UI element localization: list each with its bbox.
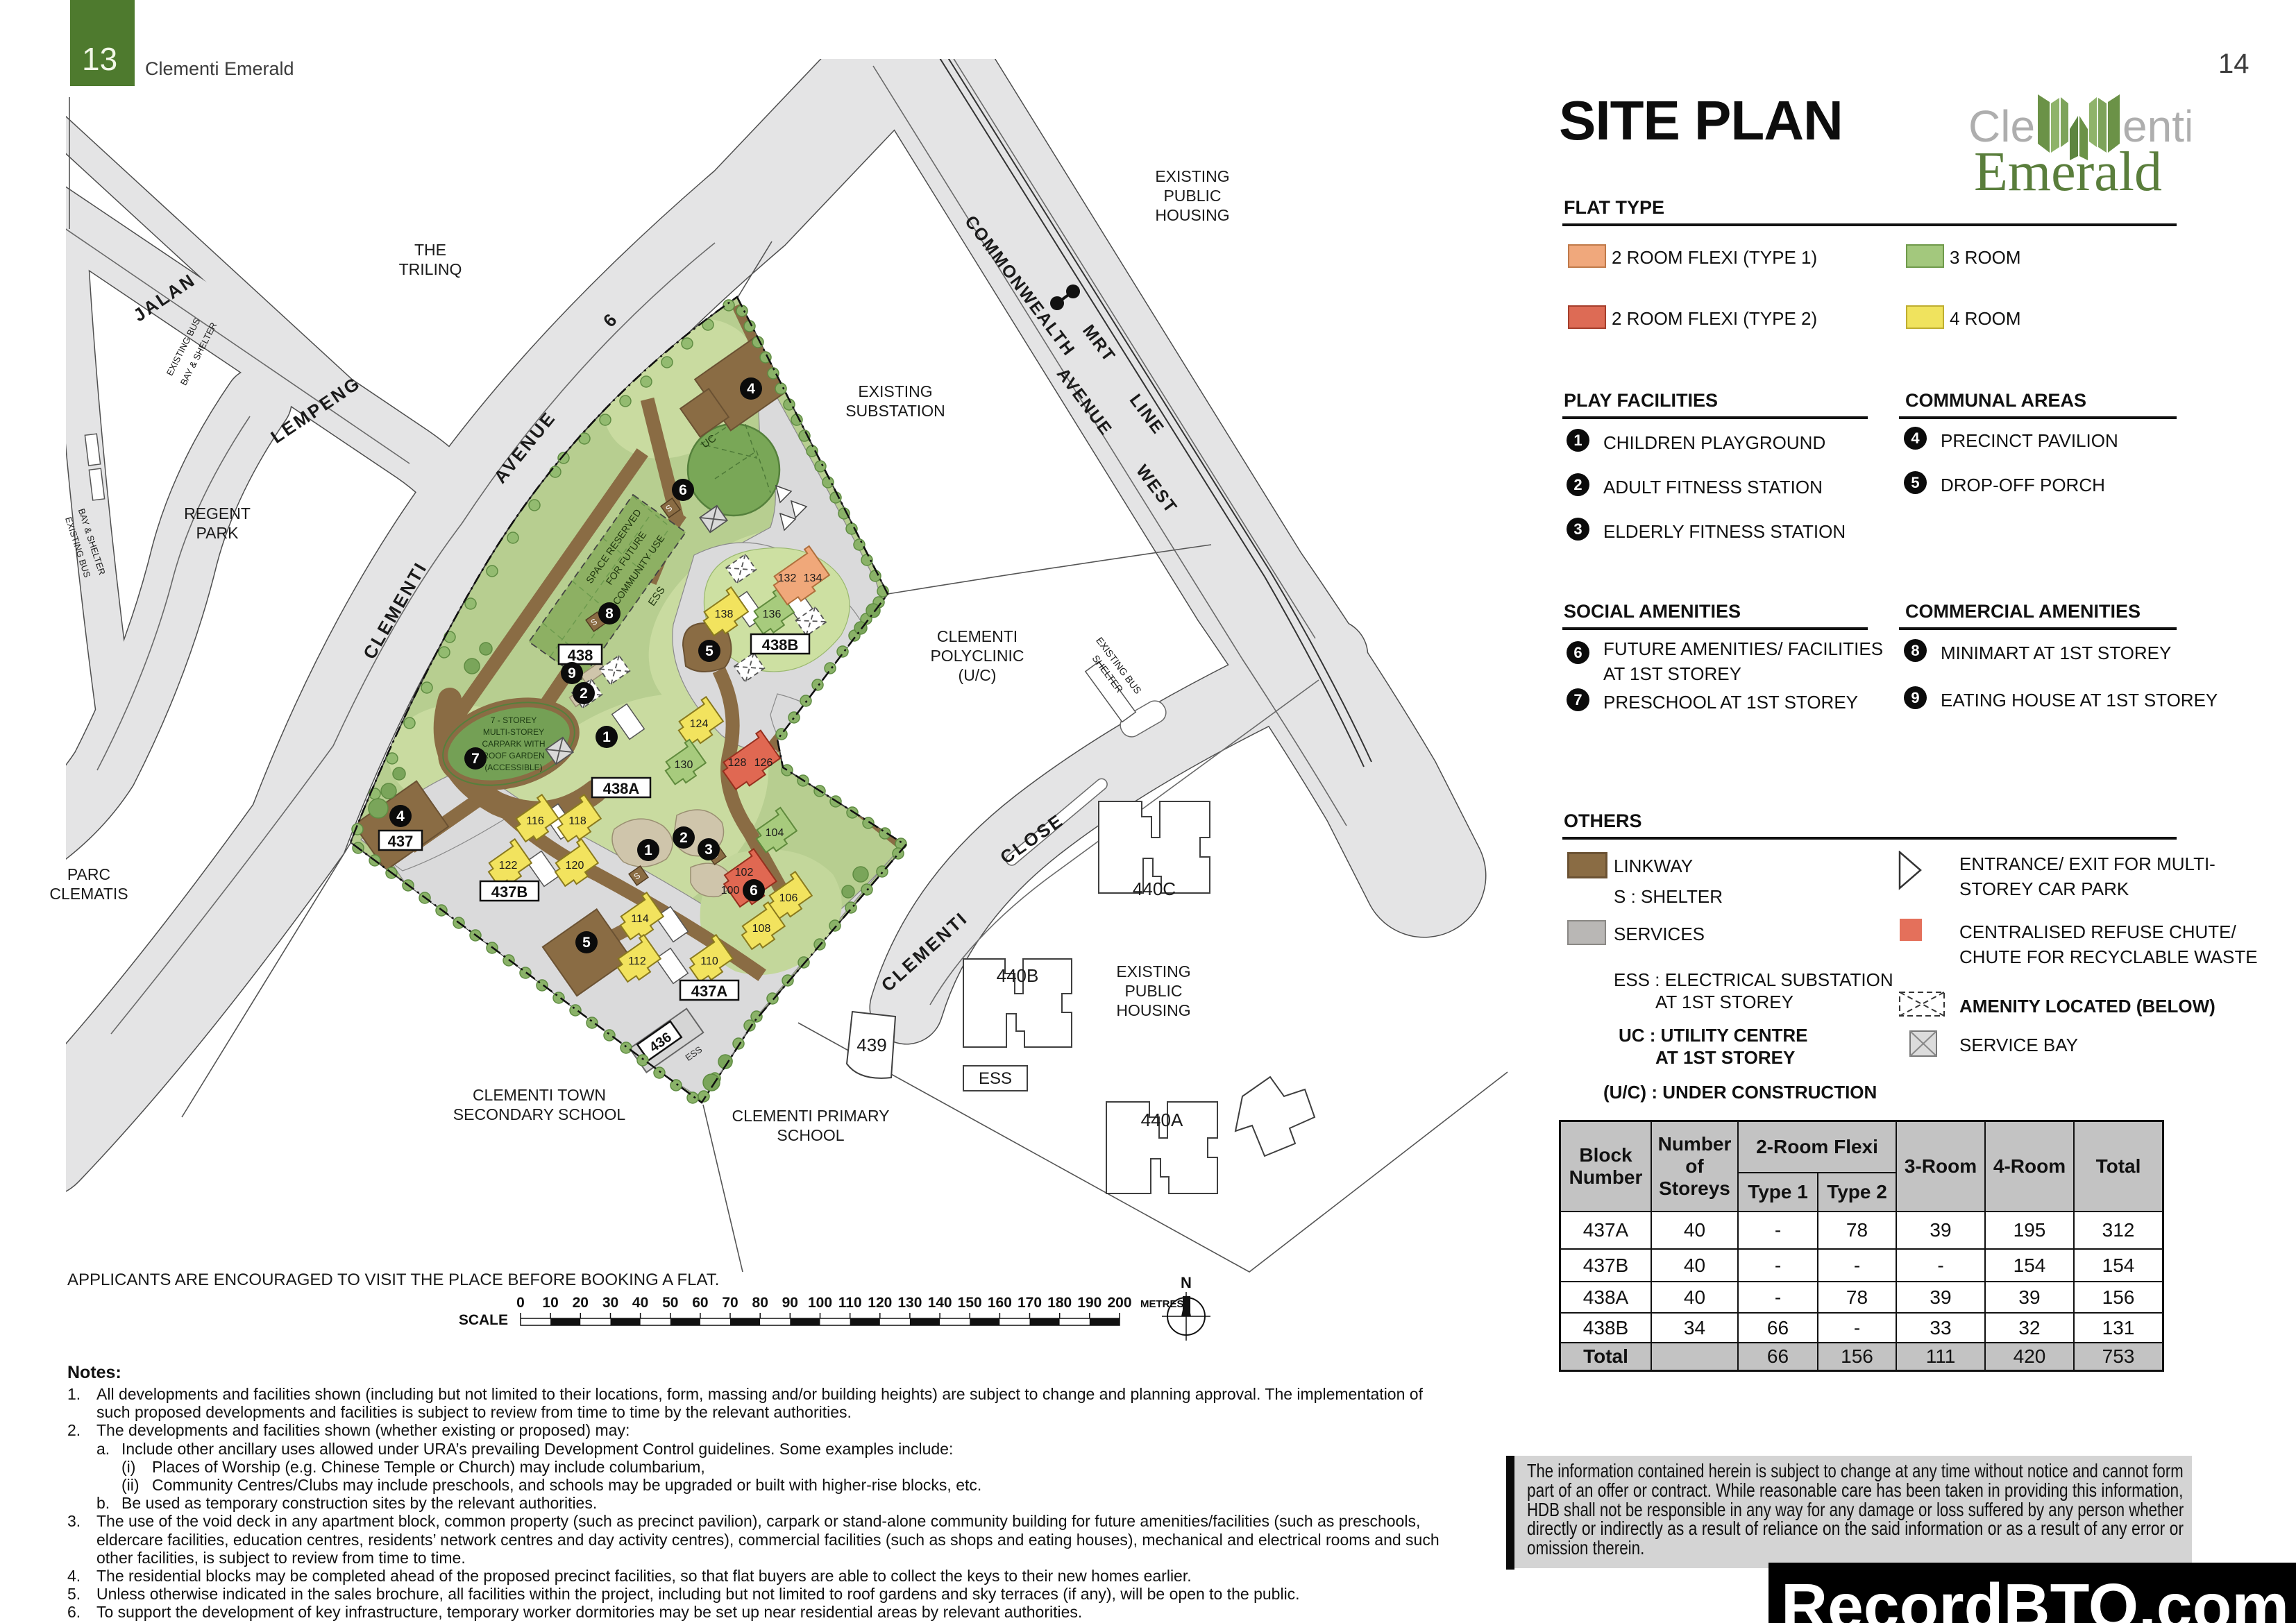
svg-text:6: 6 xyxy=(750,883,758,899)
svg-text:3: 3 xyxy=(704,842,713,858)
svg-text:PUBLIC: PUBLIC xyxy=(1124,982,1182,1000)
svg-text:102: 102 xyxy=(735,867,754,878)
svg-text:REGENT: REGENT xyxy=(184,504,251,522)
svg-text:EXISTING: EXISTING xyxy=(1155,167,1229,185)
svg-text:4: 4 xyxy=(396,808,405,824)
svg-text:CLEMENTI PRIMARY: CLEMENTI PRIMARY xyxy=(732,1107,889,1125)
svg-text:132: 132 xyxy=(778,572,797,584)
svg-text:200: 200 xyxy=(1107,1295,1131,1311)
svg-text:440A: 440A xyxy=(1141,1110,1183,1130)
svg-text:136: 136 xyxy=(763,609,782,620)
svg-text:440B: 440B xyxy=(997,965,1039,986)
svg-text:170: 170 xyxy=(1018,1295,1042,1311)
svg-text:180: 180 xyxy=(1047,1295,1072,1311)
svg-text:138: 138 xyxy=(715,609,734,620)
svg-text:130: 130 xyxy=(897,1295,922,1311)
svg-text:112: 112 xyxy=(628,955,646,967)
svg-text:110: 110 xyxy=(700,955,718,967)
svg-text:438A: 438A xyxy=(603,780,640,797)
svg-text:CLEMATIS: CLEMATIS xyxy=(49,885,128,903)
svg-text:130: 130 xyxy=(675,759,693,771)
svg-text:SCHOOL: SCHOOL xyxy=(777,1126,844,1144)
svg-text:438B: 438B xyxy=(762,636,799,654)
svg-text:440C: 440C xyxy=(1133,878,1176,899)
svg-text:PARK: PARK xyxy=(196,524,239,542)
svg-text:SCALE: SCALE xyxy=(459,1312,508,1328)
svg-text:120: 120 xyxy=(868,1295,892,1311)
svg-text:9: 9 xyxy=(568,665,576,681)
svg-text:104: 104 xyxy=(766,827,784,839)
svg-text:ROOF GARDEN: ROOF GARDEN xyxy=(482,751,544,760)
svg-text:114: 114 xyxy=(631,913,649,925)
svg-text:110: 110 xyxy=(838,1295,862,1311)
svg-text:126: 126 xyxy=(754,757,773,769)
svg-text:50: 50 xyxy=(662,1295,678,1311)
svg-text:8: 8 xyxy=(605,606,614,622)
svg-text:100: 100 xyxy=(721,885,740,897)
svg-text:437: 437 xyxy=(388,833,414,850)
svg-text:EXISTING: EXISTING xyxy=(858,382,932,400)
svg-text:7: 7 xyxy=(471,751,480,767)
svg-text:2: 2 xyxy=(679,830,688,846)
svg-text:ESS: ESS xyxy=(979,1069,1012,1088)
svg-text:Emerald: Emerald xyxy=(1974,142,2162,197)
svg-text:CLEMENTI: CLEMENTI xyxy=(937,627,1018,645)
svg-text:90: 90 xyxy=(782,1295,798,1311)
svg-text:1: 1 xyxy=(644,842,652,858)
svg-text:SECONDARY SCHOOL: SECONDARY SCHOOL xyxy=(453,1105,626,1123)
svg-text:APPLICANTS ARE ENCOURAGED TO V: APPLICANTS ARE ENCOURAGED TO VISIT THE P… xyxy=(67,1271,719,1289)
svg-text:437A: 437A xyxy=(691,983,728,1000)
svg-text:140: 140 xyxy=(928,1295,952,1311)
svg-text:190: 190 xyxy=(1077,1295,1101,1311)
svg-text:108: 108 xyxy=(752,923,771,935)
svg-text:160: 160 xyxy=(988,1295,1012,1311)
svg-text:437B: 437B xyxy=(491,883,528,901)
svg-text:30: 30 xyxy=(602,1295,618,1311)
svg-text:5: 5 xyxy=(705,643,714,659)
svg-text:439: 439 xyxy=(856,1035,886,1055)
svg-text:HOUSING: HOUSING xyxy=(1155,206,1229,224)
svg-text:CLEMENTI TOWN: CLEMENTI TOWN xyxy=(473,1086,606,1104)
svg-text:0: 0 xyxy=(516,1295,525,1311)
svg-text:N: N xyxy=(1181,1274,1192,1291)
svg-text:HOUSING: HOUSING xyxy=(1116,1001,1190,1019)
svg-text:7 - STOREY: 7 - STOREY xyxy=(491,715,537,725)
svg-text:10: 10 xyxy=(542,1295,558,1311)
svg-text:134: 134 xyxy=(804,572,822,584)
svg-text:150: 150 xyxy=(958,1295,982,1311)
svg-text:2: 2 xyxy=(580,686,588,702)
svg-text:100: 100 xyxy=(808,1295,832,1311)
svg-text:SUBSTATION: SUBSTATION xyxy=(845,402,945,420)
svg-text:MULTI-STOREY: MULTI-STOREY xyxy=(483,727,544,737)
svg-text:THE: THE xyxy=(414,241,446,259)
svg-text:106: 106 xyxy=(779,892,798,904)
svg-text:60: 60 xyxy=(692,1295,708,1311)
svg-text:TRILINQ: TRILINQ xyxy=(399,260,462,278)
svg-text:EXISTING: EXISTING xyxy=(1116,962,1190,980)
svg-text:6: 6 xyxy=(679,482,687,498)
svg-text:PUBLIC: PUBLIC xyxy=(1163,187,1221,205)
svg-text:40: 40 xyxy=(632,1295,648,1311)
svg-text:122: 122 xyxy=(499,860,518,872)
svg-text:CARPARK WITH: CARPARK WITH xyxy=(482,739,545,749)
svg-text:70: 70 xyxy=(722,1295,738,1311)
svg-text:118: 118 xyxy=(568,815,586,827)
svg-text:116: 116 xyxy=(526,815,544,827)
svg-text:80: 80 xyxy=(752,1295,768,1311)
svg-text:20: 20 xyxy=(573,1295,589,1311)
svg-text:124: 124 xyxy=(690,718,709,730)
svg-text:PARC: PARC xyxy=(67,865,110,883)
svg-text:5: 5 xyxy=(582,935,591,951)
svg-text:128: 128 xyxy=(728,757,747,769)
svg-text:438: 438 xyxy=(568,647,593,664)
svg-text:POLYCLINIC: POLYCLINIC xyxy=(930,647,1024,665)
svg-text:1: 1 xyxy=(602,729,611,745)
svg-text:120: 120 xyxy=(566,860,584,872)
svg-text:(ACCESSIBLE): (ACCESSIBLE) xyxy=(484,763,542,772)
svg-text:(U/C): (U/C) xyxy=(959,666,997,684)
svg-text:4: 4 xyxy=(747,381,755,397)
